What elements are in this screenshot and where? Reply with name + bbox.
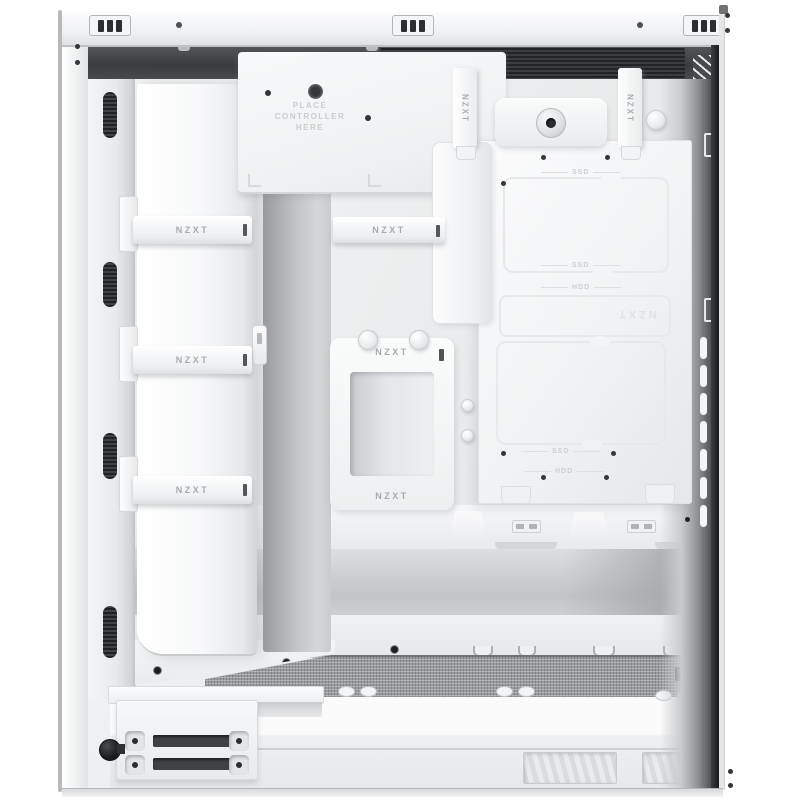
drive-cage — [116, 700, 258, 780]
strap-label: NZXT — [330, 347, 454, 357]
cable-strap: NZXT — [333, 217, 445, 243]
ssd-bracket-frame: NZXT NZXT — [330, 338, 454, 510]
drive-label-ssd: SSD — [552, 448, 569, 455]
strap-tip-slot — [243, 354, 247, 366]
standoff-peg — [646, 110, 666, 130]
cage-mount-hole — [229, 755, 249, 775]
strap-label: NZXT — [176, 355, 210, 365]
screw — [390, 645, 399, 654]
strap-fold-tip — [621, 146, 641, 160]
right-outer-strip — [719, 12, 725, 790]
cage-mount-hole — [229, 731, 249, 751]
ssd-tray-outline-upper — [503, 177, 669, 273]
hdd-tray-outline: NZXT — [499, 295, 671, 337]
etched-brand: NZXT — [616, 308, 657, 320]
tray-notch — [590, 336, 610, 346]
rail-slot — [701, 20, 707, 32]
wall-slot — [700, 421, 707, 443]
wall-slot — [700, 337, 707, 359]
rail-slot-group — [89, 15, 131, 36]
cable-channel-recess — [263, 190, 331, 652]
rail-slot — [710, 20, 716, 32]
rail-slot — [401, 20, 407, 32]
grommet-hole — [308, 84, 323, 99]
left-inner-wall — [88, 79, 136, 699]
drive-label-hdd: HDD — [555, 468, 573, 475]
screw — [75, 60, 80, 65]
ledge-slot-pair — [512, 520, 541, 533]
standoff-peg — [409, 330, 429, 350]
cage-thumbscrew-shaft — [117, 744, 125, 754]
controller-hint-text: PLACE CONTROLLER HERE — [252, 100, 368, 133]
rail-slot — [410, 20, 416, 32]
strap-label: NZXT — [626, 94, 635, 123]
rail-slot — [692, 20, 698, 32]
controller-hint-line1: PLACE — [252, 100, 368, 111]
strap-fold-tip — [456, 146, 476, 160]
cage-mount-hole — [125, 731, 145, 751]
cage-mount-hole — [125, 755, 145, 775]
cable-strap: NZXT — [133, 346, 252, 374]
wall-slot — [700, 505, 707, 527]
etched-corner-mark — [248, 174, 261, 187]
vent-oval — [103, 262, 117, 307]
thumbscrew-hole — [546, 118, 556, 128]
screw — [637, 22, 643, 28]
screw — [728, 783, 733, 788]
screw — [265, 90, 271, 96]
screw — [541, 155, 546, 160]
screw — [75, 44, 80, 49]
screw — [611, 451, 616, 456]
drive-mount-plate: SSD SSD HDD NZXT SSD HDD — [478, 140, 692, 504]
screw — [604, 475, 609, 480]
drive-label: HDD — [524, 468, 604, 475]
cage-under-shadow — [256, 702, 322, 717]
vent-oval — [103, 606, 117, 658]
strap-tip-slot — [436, 225, 440, 237]
standoff-peg — [461, 399, 474, 412]
wall-slot — [700, 393, 707, 415]
strap-label: NZXT — [461, 94, 470, 123]
bracket-window — [350, 372, 434, 476]
thumbscrew — [536, 108, 566, 138]
left-outer-panel — [62, 12, 89, 790]
oval-pair-stamp — [496, 686, 535, 697]
strap-label: NZXT — [176, 485, 210, 495]
screw — [541, 475, 546, 480]
strap-tip-slot — [243, 484, 247, 496]
screw — [153, 666, 162, 675]
right-edge-dark — [711, 45, 719, 790]
vent-oval — [103, 92, 117, 138]
cage-slot — [153, 758, 231, 770]
screw — [685, 517, 690, 522]
cage-slot — [153, 735, 231, 747]
screw — [365, 115, 371, 121]
screw — [605, 155, 610, 160]
wall-slot — [700, 449, 707, 471]
drive-label: SSD — [521, 448, 600, 455]
standoff-peg — [461, 429, 474, 442]
top-rail — [62, 12, 723, 47]
cable-strap-vertical: NZXT — [453, 68, 477, 148]
controller-hint-line2: CONTROLLER — [252, 111, 368, 122]
ledge-slot-pair — [627, 520, 656, 533]
rail-slot-group — [392, 15, 434, 36]
oval-pair-stamp — [338, 686, 377, 697]
drive-label-hdd: HDD — [572, 284, 590, 291]
drive-label-ssd: SSD — [572, 262, 589, 269]
strap-tip-slot — [439, 349, 444, 361]
rail-slot — [116, 20, 122, 32]
wall-slot — [700, 365, 707, 387]
controller-hint-line3: HERE — [252, 122, 368, 133]
screw — [176, 22, 182, 28]
case-bottom-rim — [62, 788, 723, 797]
drive-label: SSD — [541, 262, 620, 269]
standoff-peg — [358, 330, 378, 350]
etched-corner-mark — [368, 174, 381, 187]
ledge-tab — [567, 512, 611, 545]
wall-slot — [700, 477, 707, 499]
screw — [725, 13, 730, 18]
cable-bundle — [693, 55, 711, 79]
rail-slot — [98, 20, 104, 32]
channel-latch — [252, 325, 267, 365]
drive-label: SSD — [541, 169, 620, 176]
plate-foot — [501, 486, 531, 504]
plate-foot — [645, 484, 675, 504]
strap-label: NZXT — [176, 225, 210, 235]
cable-strap-vertical: NZXT — [618, 68, 642, 148]
strap-tip-slot — [243, 224, 247, 236]
screw — [501, 451, 506, 456]
vent-recess — [523, 752, 617, 784]
cable-strap: NZXT — [133, 476, 252, 504]
drive-label-ssd: SSD — [572, 169, 589, 176]
strap-label: NZXT — [330, 491, 454, 501]
screw — [501, 181, 506, 186]
drive-label: HDD — [541, 284, 621, 291]
rail-slot — [419, 20, 425, 32]
pc-case-photo: PLACE CONTROLLER HERE SSD SSD HDD NZXT S… — [0, 0, 800, 800]
screw — [728, 769, 733, 774]
cable-strap: NZXT — [133, 216, 252, 244]
tray-notch — [593, 268, 613, 278]
latch-slot — [257, 333, 262, 344]
rail-slot — [107, 20, 113, 32]
ssd-tray-outline-lower — [496, 341, 666, 445]
screw — [725, 28, 730, 33]
ledge-tab — [448, 511, 488, 545]
vent-oval — [103, 433, 117, 479]
strap-label: NZXT — [372, 225, 406, 235]
